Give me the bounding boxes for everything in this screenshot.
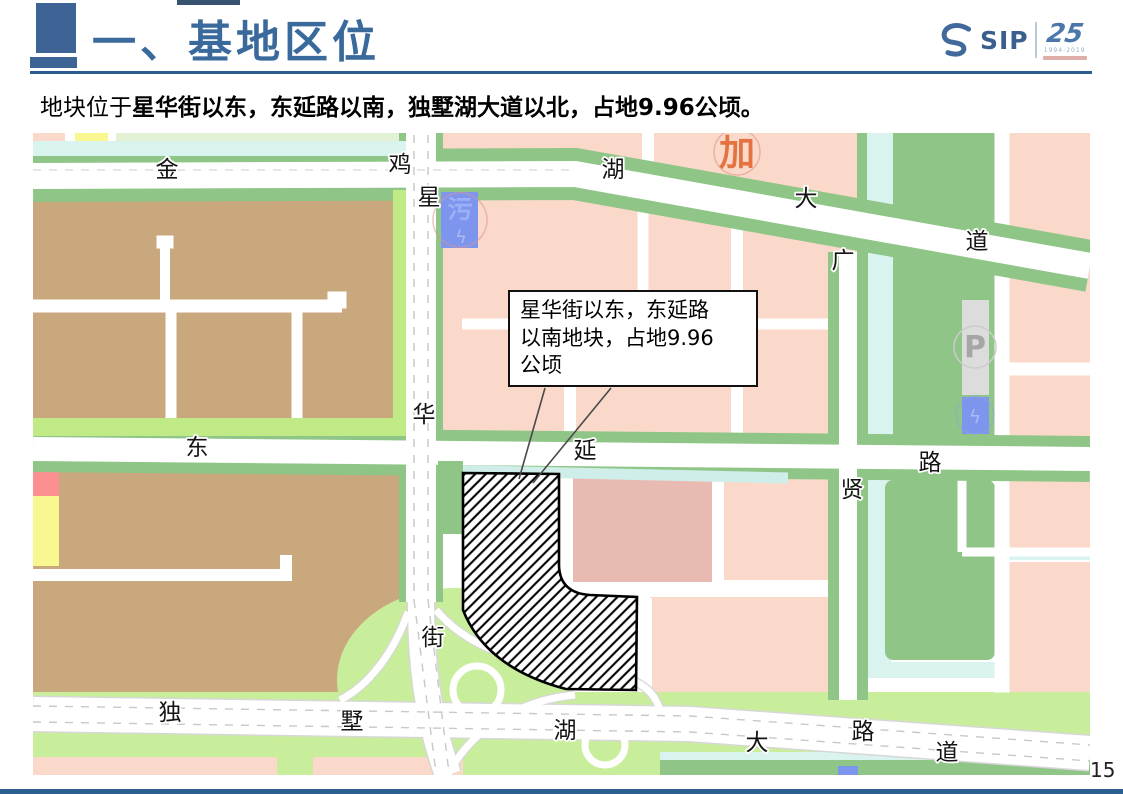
sip-swirl-icon <box>938 22 974 58</box>
label-xinghua-3: 街 <box>422 625 445 651</box>
label-guangxian-2: 贤 <box>841 477 864 503</box>
power-icon-2: ϟ <box>969 406 982 428</box>
green-block-southeast <box>885 480 995 660</box>
label-guangxian-1: 广 <box>832 248 855 274</box>
anniversary-logo: 25 1994-2019 <box>1043 21 1087 60</box>
sewage-icon: 污 <box>447 195 472 224</box>
label-dongyan-3: 路 <box>919 450 942 476</box>
label-xinghua-2: 华 <box>413 402 436 428</box>
logo-divider <box>1035 22 1037 58</box>
canal-strip-northwest <box>33 141 406 156</box>
subtitle-emphasis: 星华街以东，东延路以南，独墅湖大道以北，占地9.96公顷。 <box>132 95 764 121</box>
title-deco-square <box>36 3 76 53</box>
label-jinjihu-3: 湖 <box>602 157 625 183</box>
subtitle-prefix: 地块位于 <box>40 95 132 121</box>
label-dushuhu-4: 大 <box>746 730 769 756</box>
sip-logo: SIP 25 1994-2019 <box>938 16 1108 64</box>
title-deco-bar <box>30 57 77 68</box>
page-title: 一、基地区位 <box>92 6 380 70</box>
label-dongyan-2: 延 <box>574 438 597 464</box>
parking-icon: P <box>964 330 986 365</box>
mauve-block <box>573 474 713 582</box>
callout-line-1: 星华街以东，东延路 <box>520 297 746 325</box>
footer-bar <box>0 789 1123 794</box>
label-jinjihu-2: 鸡 <box>389 152 412 178</box>
yellow-block <box>33 496 59 566</box>
label-dongyan-1: 东 <box>186 435 209 461</box>
canal-north <box>867 133 893 440</box>
label-dushuhu-1: 独 <box>159 700 182 726</box>
sip-logo-text: SIP <box>980 26 1029 55</box>
label-dushuhu-5: 道 <box>936 740 959 766</box>
label-dushuhu-2: 墅 <box>341 709 364 735</box>
label-jinjihu-1: 金 <box>156 157 179 183</box>
tan-block-upper <box>33 200 406 426</box>
gas-station-icon: 加 <box>719 133 755 174</box>
page-number: 15 <box>1090 758 1115 782</box>
label-dushuhu-3: 湖 <box>554 718 577 744</box>
label-xinghua-1: 星 <box>418 185 441 211</box>
power-icon-1: ϟ <box>455 227 467 248</box>
site-callout-box: 星华街以东，东延路 以南地块，占地9.96 公顷 <box>508 290 758 387</box>
title-rule <box>30 71 1092 74</box>
subtitle: 地块位于星华街以东，东延路以南，独墅湖大道以北，占地9.96公顷。 <box>40 88 764 122</box>
label-guangxian-3: 路 <box>852 719 875 745</box>
callout-line-3: 公顷 <box>520 352 746 380</box>
label-jinjihu-4: 大 <box>795 186 818 212</box>
logo-caption-strip <box>1043 56 1087 60</box>
anniversary-25: 25 <box>1044 21 1085 47</box>
label-jinjihu-5: 道 <box>966 229 989 255</box>
site-location-map: 污 ϟ P ϟ 加 金 鸡 湖 大 道 星 华 <box>33 133 1090 775</box>
top-accent-bar <box>177 0 240 5</box>
callout-line-2: 以南地块，占地9.96 <box>520 325 746 353</box>
